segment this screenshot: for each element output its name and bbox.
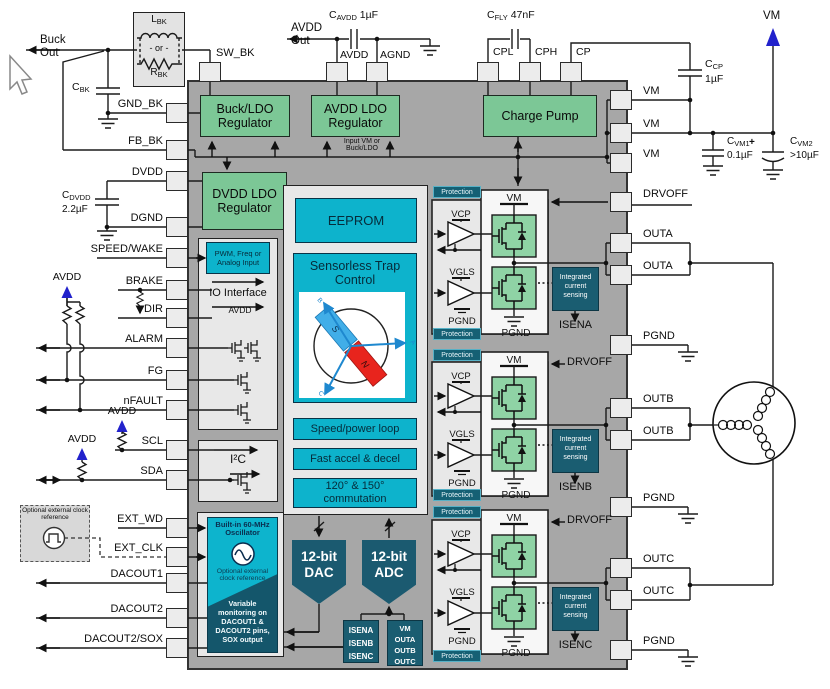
protection-badge-b-bottom: Protection [433, 489, 481, 501]
io-interface-label: IO Interface [198, 288, 278, 300]
resistor-sda-pullup [78, 462, 86, 480]
pin-dgnd [166, 217, 188, 237]
charge-pump-block: Charge Pump [483, 95, 597, 137]
i2c-label: I²C [198, 453, 278, 466]
isen-b: ISENB [344, 638, 378, 651]
drvoff-net-b: DRVOFF [567, 357, 612, 369]
c-vm2-plus: + [749, 138, 755, 149]
resistor-scl-pullup [118, 432, 126, 450]
avdd-net-label-2: AVDD [102, 406, 142, 417]
c-avdd-v: 1µF [360, 9, 378, 21]
pin-label-outa1: OUTA [643, 229, 673, 241]
l-bk-s: BK [157, 17, 167, 26]
pin-label-cpl: CPL [493, 47, 513, 58]
current-sense-b: Integrated current sensing [552, 429, 599, 473]
gnd-cdvdd [97, 231, 117, 240]
c-dvdd-v: 2.2µF [62, 204, 91, 216]
avdd-out-line2: Out [291, 35, 322, 48]
pin-cp [560, 62, 582, 82]
io-avdd-label: AVDD [198, 306, 282, 315]
pin-pgnd3 [610, 640, 632, 660]
fast-accel-block: Fast accel & decel [293, 448, 417, 470]
pin-outb1 [610, 398, 632, 418]
pin-label-sda: SDA [140, 466, 163, 478]
i2c-container [198, 440, 278, 502]
c-bk-p: C [72, 81, 80, 93]
src-outa: OUTA [388, 635, 422, 646]
avdd-net-label-3: AVDD [62, 434, 102, 445]
pin-scl [166, 440, 188, 460]
pwm-input-block: PWM, Freq or Analog Input [206, 242, 270, 274]
src-outb: OUTB [388, 646, 422, 657]
resistor-brake-pulldown [137, 292, 143, 306]
protection-badge-c-top: Protection [433, 506, 481, 518]
pwm-input-label: PWM, Freq or Analog Input [207, 249, 269, 268]
pin-fb-bk [166, 140, 188, 160]
eeprom-block: EEPROM [295, 198, 417, 243]
src-outc: OUTC [388, 657, 422, 668]
pin-ext-wd [166, 518, 188, 538]
c-vm1-v: 0.1µF [727, 150, 753, 162]
pin-label-cph: CPH [535, 47, 557, 58]
avdd-net-label-1: AVDD [47, 272, 87, 283]
dac-label: 12-bit DAC [299, 549, 339, 580]
pin-outa2 [610, 265, 632, 285]
pin-label-sw-bk: SW_BK [216, 48, 255, 60]
current-sense-c: Integrated current sensing [552, 587, 599, 631]
commutation-block: 120° & 150° commutation [293, 478, 417, 508]
pin-label-scl: SCL [142, 436, 163, 448]
avdd-arrow-1 [62, 286, 73, 298]
buck-ldo-label: Buck/LDO Regulator [201, 102, 289, 130]
pin-cpl [477, 62, 499, 82]
input-vm-note: Input VM or Buck/LDO [330, 138, 394, 153]
c-cp-v: 1µF [705, 73, 723, 85]
pin-label-vm3: VM [643, 149, 660, 161]
pin-cph [519, 62, 541, 82]
or-label: - or - [133, 44, 185, 53]
current-sense-a-label: Integrated current sensing [556, 273, 596, 300]
c-avdd-s: AVDD [337, 13, 357, 22]
charge-pump-label: Charge Pump [501, 109, 578, 123]
drvoff-net-c: DRVOFF [567, 515, 612, 527]
resistor-nfault-pullup [76, 306, 84, 324]
isen-c: ISENC [344, 651, 378, 664]
pin-label-dgnd: DGND [131, 213, 163, 225]
c-fly-p: C [487, 9, 495, 21]
osc-optional-label: Optional external clock reference [210, 568, 275, 582]
pin-dacout2 [166, 608, 188, 628]
motor-coils [714, 388, 775, 459]
r-bk-label: RBK [133, 68, 185, 79]
r-bk-s: BK [158, 70, 168, 79]
avdd-out-label: AVDD Out [291, 22, 322, 48]
pin-label-outb2: OUTB [643, 426, 674, 438]
current-sense-c-label: Integrated current sensing [556, 593, 596, 620]
pin-alarm [166, 338, 188, 358]
oscillator-label: Built-in 60-MHz Oscillator [209, 521, 276, 537]
c-vm1-s: VM1 [734, 139, 749, 148]
gnd-cvm1 [703, 166, 723, 175]
pin-label-outc2: OUTC [643, 586, 674, 598]
src-vm: VM [388, 624, 422, 635]
pin-label-cp: CP [576, 47, 591, 58]
pin-label-speed-wake: SPEED/WAKE [91, 244, 163, 256]
current-sense-b-label: Integrated current sensing [556, 435, 596, 462]
speed-loop-block: Speed/power loop [293, 418, 417, 440]
pin-sda [166, 470, 188, 490]
optional-clock-label: Optional external clock reference [22, 508, 88, 522]
c-avdd-label: CAVDD 1µF [329, 10, 378, 22]
avdd-out-line1: AVDD [291, 22, 322, 35]
avdd-ldo-label: AVDD LDO Regulator [312, 102, 399, 130]
dvdd-ldo-label: DVDD LDO Regulator [203, 187, 286, 215]
gnd-pgnd3 [678, 657, 698, 666]
pin-fg [166, 370, 188, 390]
c-avdd-p: C [329, 9, 337, 21]
avdd-ldo-regulator-block: AVDD LDO Regulator [311, 95, 400, 137]
resistor-fg-pullup [63, 306, 71, 324]
vm-net-label: VM [763, 10, 780, 22]
buck-out-line1: Buck [40, 34, 66, 47]
pin-vm2 [610, 123, 632, 143]
gnd-pgnd1 [678, 352, 698, 361]
c-vm2-label: CVM2>10µF [790, 136, 819, 161]
commutation-label: 120° & 150° commutation [310, 480, 400, 506]
pin-label-pgnd2: PGND [643, 493, 675, 505]
pin-label-dacout1: DACOUT1 [110, 569, 163, 581]
pin-nfault [166, 400, 188, 420]
motor-symbol [713, 382, 795, 464]
pin-label-vm2: VM [643, 119, 660, 131]
pin-label-fb-bk: FB_BK [128, 136, 163, 148]
pin-speed-wake [166, 248, 188, 268]
c-bk-s: BK [80, 85, 90, 94]
pin-dacout2-sox [166, 638, 188, 658]
pin-pgnd1 [610, 335, 632, 355]
pin-agnd [366, 62, 388, 82]
pin-avdd [326, 62, 348, 82]
eeprom-label: EEPROM [328, 213, 384, 228]
pin-label-avdd-top: AVDD [340, 50, 368, 61]
pin-sw-bk [199, 62, 221, 82]
isenc-label: ISENC [552, 640, 599, 652]
pin-label-dacout2-sox: DACOUT2/SOX [84, 634, 163, 646]
pin-label-agnd: AGND [380, 50, 410, 61]
pin-label-dir: DIR [144, 304, 163, 316]
pin-dvdd [166, 171, 188, 191]
monitoring-label: Variable monitoring on DACOUT1 & DACOUT2… [209, 599, 276, 645]
block-diagram-page: { "colors":{"green":"#7cc796","cyan":"#0… [0, 0, 830, 689]
pin-label-outc1: OUTC [643, 554, 674, 566]
pin-dacout1 [166, 573, 188, 593]
protection-badge-b-top: Protection [433, 349, 481, 361]
pin-label-alarm: ALARM [125, 334, 163, 346]
pin-outc2 [610, 590, 632, 610]
pin-brake [166, 280, 188, 300]
gnd-cvm2 [763, 170, 783, 179]
vm-arrow [766, 28, 780, 46]
avdd-arrow-2 [117, 420, 128, 432]
isen-a: ISENA [344, 625, 378, 638]
isena-label: ISENA [552, 320, 599, 332]
c-vm2-s: VM2 [797, 139, 812, 148]
mouse-cursor [10, 56, 31, 94]
l-bk-label: LBK [133, 15, 185, 26]
buck-out-line2: Out [40, 47, 66, 60]
pin-label-fg: FG [148, 366, 163, 378]
c-cp-s: CP [713, 62, 723, 71]
dvdd-ldo-regulator-block: DVDD LDO Regulator [202, 172, 287, 230]
sensorless-label: Sensorless Trap Control [294, 259, 416, 287]
pin-label-pgnd3: PGND [643, 636, 675, 648]
c-dvdd-label: CDVDD2.2µF [62, 190, 91, 215]
c-vm2-v: >10µF [790, 150, 819, 162]
isen-sources-box: ISENA ISENB ISENC [343, 620, 379, 663]
gnd-pgnd2 [678, 514, 698, 523]
gnd-cbk [98, 119, 118, 128]
c-bk-label: CBK [72, 82, 90, 94]
pin-label-ext-clk: EXT_CLK [114, 543, 163, 555]
c-cp-label: CCP1µF [705, 58, 723, 85]
pin-label-dacout2: DACOUT2 [110, 604, 163, 616]
r-bk-p: R [150, 67, 157, 78]
protection-badge-c-bottom: Protection [433, 650, 481, 662]
sensorless-trap-block: Sensorless Trap Control [293, 253, 417, 403]
pin-vm3 [610, 153, 632, 173]
isenb-label: ISENB [552, 482, 599, 494]
vm-out-sources-box: VM OUTA OUTB OUTC [387, 620, 423, 666]
c-fly-v: 47nF [511, 9, 535, 21]
pin-label-outb1: OUTB [643, 394, 674, 406]
protection-badge-a-bottom: Protection [433, 328, 481, 340]
pin-outb2 [610, 430, 632, 450]
speed-loop-label: Speed/power loop [311, 423, 400, 435]
pin-ext-clk [166, 547, 188, 567]
protection-badge-a-top: Protection [433, 186, 481, 198]
pin-pgnd2 [610, 497, 632, 517]
pin-vm1 [610, 90, 632, 110]
pin-label-outa2: OUTA [643, 261, 673, 273]
fast-accel-label: Fast accel & decel [310, 453, 400, 465]
pin-drvoff [610, 192, 632, 212]
avdd-arrow-3 [77, 448, 88, 460]
pin-label-dvdd: DVDD [132, 167, 163, 179]
pin-label-vm1: VM [643, 86, 660, 98]
pin-outa1 [610, 233, 632, 253]
buck-out-label: Buck Out [40, 34, 66, 60]
pin-label-gnd-bk: GND_BK [118, 99, 163, 111]
pin-label-ext-wd: EXT_WD [117, 514, 163, 526]
pin-gnd-bk [166, 103, 188, 123]
adc-label: 12-bit ADC [369, 549, 409, 580]
c-cp-p: C [705, 58, 713, 70]
c-fly-label: CFLY 47nF [487, 10, 535, 22]
c-dvdd-s: DVDD [69, 193, 90, 202]
pin-label-brake: BRAKE [126, 276, 163, 288]
current-sense-a: Integrated current sensing [552, 267, 599, 311]
buck-ldo-regulator-block: Buck/LDO Regulator [200, 95, 290, 137]
pin-label-pgnd1: PGND [643, 331, 675, 343]
c-fly-s: FLY [495, 13, 508, 22]
gnd-agnd [420, 46, 440, 55]
pin-dir [166, 308, 188, 328]
pin-label-drvoff: DRVOFF [643, 189, 688, 201]
pin-outc1 [610, 558, 632, 578]
